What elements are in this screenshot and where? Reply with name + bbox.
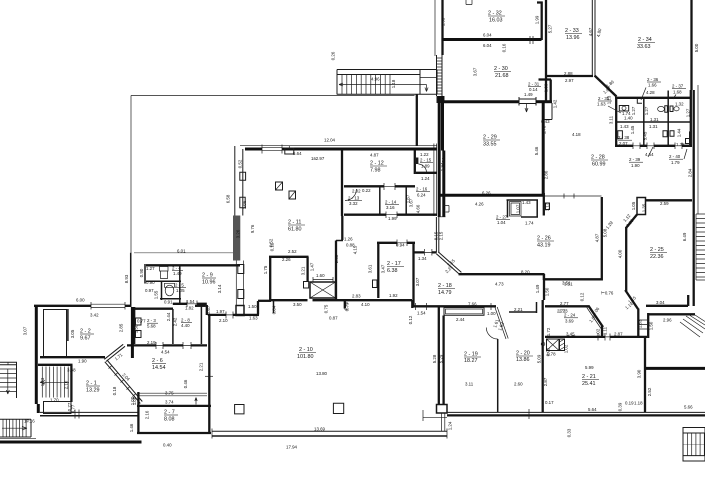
svg-text:1.63: 1.63 <box>638 319 643 328</box>
svg-text:2 - 32: 2 - 32 <box>488 11 502 17</box>
svg-text:2.38: 2.38 <box>334 254 339 263</box>
svg-text:1.47: 1.47 <box>310 262 315 271</box>
svg-text:⊢0.76: ⊢0.76 <box>601 291 614 296</box>
svg-text:2 - 6: 2 - 6 <box>152 358 163 364</box>
svg-text:1.74: 1.74 <box>622 111 631 116</box>
svg-text:101.80: 101.80 <box>297 354 314 360</box>
svg-text:2.44: 2.44 <box>166 312 171 321</box>
svg-text:1.50: 1.50 <box>545 287 550 296</box>
svg-text:2.02: 2.02 <box>352 189 361 194</box>
svg-text:10.96: 10.96 <box>202 280 216 286</box>
svg-text:9.76: 9.76 <box>250 224 255 233</box>
svg-text:1.34: 1.34 <box>440 162 445 171</box>
svg-text:1.06: 1.06 <box>544 83 549 92</box>
svg-text:1.74: 1.74 <box>525 221 534 226</box>
svg-text:0.12: 0.12 <box>408 315 413 324</box>
svg-text:0.79: 0.79 <box>345 302 350 311</box>
svg-text:5.99: 5.99 <box>585 365 594 370</box>
svg-text:13.86: 13.86 <box>516 357 530 363</box>
svg-text:3.90: 3.90 <box>637 369 642 378</box>
svg-text:1.49: 1.49 <box>173 271 182 276</box>
svg-text:0.90: 0.90 <box>139 268 144 277</box>
svg-text:1.00: 1.00 <box>132 396 137 405</box>
svg-text:21.68: 21.68 <box>495 73 509 79</box>
svg-text:1.31: 1.31 <box>649 124 658 129</box>
svg-text:0.12: 0.12 <box>580 292 585 301</box>
svg-text:5.09: 5.09 <box>537 354 542 363</box>
svg-text:2.21: 2.21 <box>514 307 523 312</box>
svg-text:2 - 27: 2 - 27 <box>496 215 508 220</box>
svg-text:2 - 38: 2 - 38 <box>618 135 630 140</box>
svg-text:1.24: 1.24 <box>448 421 453 430</box>
svg-text:2.96: 2.96 <box>663 318 672 323</box>
svg-text:2.42: 2.42 <box>173 317 178 326</box>
svg-text:17.94: 17.94 <box>286 445 298 450</box>
svg-text:6.01: 6.01 <box>177 249 186 254</box>
svg-text:1.18: 1.18 <box>391 79 396 88</box>
svg-text:2 - 18: 2 - 18 <box>438 283 452 289</box>
svg-text:33.63: 33.63 <box>637 44 651 50</box>
svg-text:1.42: 1.42 <box>553 99 558 108</box>
svg-text:5.27: 5.27 <box>548 24 553 33</box>
svg-text:3.67: 3.67 <box>473 67 478 76</box>
svg-text:2.88: 2.88 <box>564 71 573 76</box>
svg-text:5.64: 5.64 <box>293 151 302 156</box>
svg-text:1.32: 1.32 <box>675 102 684 107</box>
svg-text:6.04: 6.04 <box>483 33 492 38</box>
svg-text:25.41: 25.41 <box>582 381 596 387</box>
svg-text:3.69: 3.69 <box>565 319 574 324</box>
svg-text:2 - 37: 2 - 37 <box>672 84 684 89</box>
svg-text:0.33: 0.33 <box>567 428 572 437</box>
svg-text:0.18: 0.18 <box>112 386 117 395</box>
svg-text:60.99: 60.99 <box>592 162 606 168</box>
svg-text:1.00: 1.00 <box>487 311 496 316</box>
svg-text:0.39: 0.39 <box>618 402 623 411</box>
svg-text:4.73: 4.73 <box>495 282 504 287</box>
svg-text:5.29: 5.29 <box>438 354 443 363</box>
svg-text:2 - 13: 2 - 13 <box>348 196 360 201</box>
svg-text:13.96: 13.96 <box>566 35 580 41</box>
svg-text:13.80: 13.80 <box>316 371 328 376</box>
svg-text:43.19: 43.19 <box>537 243 551 249</box>
svg-text:5.00: 5.00 <box>694 43 699 52</box>
svg-text:0.77: 0.77 <box>67 402 72 411</box>
svg-text:7.66: 7.66 <box>468 301 477 306</box>
svg-text:8.15: 8.15 <box>434 231 439 240</box>
svg-text:3.45: 3.45 <box>567 334 576 339</box>
svg-text:1.90: 1.90 <box>78 359 87 364</box>
svg-text:5.66: 5.66 <box>684 405 693 410</box>
svg-text:1.54: 1.54 <box>186 299 195 304</box>
svg-text:3.47: 3.47 <box>381 264 386 273</box>
svg-text:3.67: 3.67 <box>409 198 414 207</box>
svg-text:0.77: 0.77 <box>137 319 146 324</box>
svg-text:3.21: 3.21 <box>301 266 306 275</box>
svg-text:2 - 26: 2 - 26 <box>537 236 551 242</box>
svg-text:8.20: 8.20 <box>521 270 530 275</box>
svg-text:1.31: 1.31 <box>650 117 659 122</box>
svg-text:3.50: 3.50 <box>293 302 302 307</box>
svg-text:0.52: 0.52 <box>238 159 243 168</box>
svg-text:4.26: 4.26 <box>475 202 484 207</box>
svg-text:6.58: 6.58 <box>225 194 230 203</box>
svg-text:22.36: 22.36 <box>650 254 664 260</box>
svg-text:3.05: 3.05 <box>70 329 75 338</box>
svg-text:2.07: 2.07 <box>619 141 628 146</box>
svg-text:2.86: 2.86 <box>544 170 549 179</box>
svg-text:1.06: 1.06 <box>242 200 247 209</box>
svg-text:4.28: 4.28 <box>646 90 655 95</box>
svg-text:6.26: 6.26 <box>482 191 491 196</box>
svg-text:1.68: 1.68 <box>673 90 682 95</box>
svg-text:1.72: 1.72 <box>546 327 551 336</box>
svg-text:2 - 20: 2 - 20 <box>516 351 530 357</box>
svg-text:1.13: 1.13 <box>607 95 612 104</box>
svg-text:1.95: 1.95 <box>441 17 446 26</box>
svg-text:16.03: 16.03 <box>489 18 503 24</box>
svg-text:1.27: 1.27 <box>686 108 691 117</box>
svg-text:8.93: 8.93 <box>124 274 129 283</box>
svg-text:2.59: 2.59 <box>660 201 669 206</box>
svg-text:4.96: 4.96 <box>371 77 380 82</box>
svg-text:4.66: 4.66 <box>416 204 421 213</box>
svg-text:2 - 33: 2 - 33 <box>565 28 579 34</box>
svg-text:5.28: 5.28 <box>432 354 437 363</box>
svg-text:1.35: 1.35 <box>642 203 647 212</box>
svg-text:2 - 1: 2 - 1 <box>86 381 97 387</box>
svg-text:4.40: 4.40 <box>181 323 190 328</box>
svg-text:2.85: 2.85 <box>119 323 124 332</box>
svg-text:0.46: 0.46 <box>183 379 188 388</box>
svg-text:12.04: 12.04 <box>324 138 336 143</box>
svg-text:2 - 28: 2 - 28 <box>591 155 605 161</box>
svg-text:1.03: 1.03 <box>40 377 45 386</box>
svg-text:2 - 3: 2 - 3 <box>147 318 156 323</box>
svg-text:6.04: 6.04 <box>483 43 492 48</box>
svg-text:1Р.16: 1Р.16 <box>24 419 35 424</box>
svg-text:2 - 29: 2 - 29 <box>483 135 497 141</box>
svg-text:1.54: 1.54 <box>417 311 426 316</box>
svg-text:2 - 8: 2 - 8 <box>181 318 190 323</box>
svg-text:2.26: 2.26 <box>282 257 291 262</box>
svg-text:2.52: 2.52 <box>647 387 652 396</box>
svg-text:1.49: 1.49 <box>535 284 540 293</box>
svg-text:4.15: 4.15 <box>353 245 358 254</box>
svg-text:5.45: 5.45 <box>643 131 648 140</box>
svg-text:4.87: 4.87 <box>595 233 600 242</box>
svg-text:1.05: 1.05 <box>631 201 636 210</box>
svg-text:6.38: 6.38 <box>387 268 398 274</box>
svg-text:3.07: 3.07 <box>22 326 27 335</box>
svg-text:4.67: 4.67 <box>588 27 593 36</box>
svg-text:9.67: 9.67 <box>80 336 91 342</box>
svg-text:13.29: 13.29 <box>86 388 100 394</box>
svg-text:0.90: 0.90 <box>146 280 155 285</box>
svg-text:8.08: 8.08 <box>164 417 175 423</box>
svg-text:1.18: 1.18 <box>634 401 643 406</box>
svg-text:3.74: 3.74 <box>165 400 174 405</box>
svg-text:2.87: 2.87 <box>614 331 623 336</box>
svg-text:1.75: 1.75 <box>263 265 268 274</box>
svg-text:6.49: 6.49 <box>682 232 687 241</box>
svg-text:1.24: 1.24 <box>421 176 430 181</box>
svg-text:1.26: 1.26 <box>344 237 353 242</box>
svg-text:2.60: 2.60 <box>514 382 523 387</box>
svg-text:1.40: 1.40 <box>624 116 633 121</box>
svg-text:2 - 10: 2 - 10 <box>299 347 313 353</box>
svg-text:4.18: 4.18 <box>572 132 581 137</box>
svg-text:5.68: 5.68 <box>147 324 156 329</box>
svg-text:2.52: 2.52 <box>288 249 297 254</box>
svg-text:3.51: 3.51 <box>562 281 571 286</box>
svg-text:0.94: 0.94 <box>396 243 405 248</box>
svg-text:1.34: 1.34 <box>418 256 427 261</box>
svg-text:1.50: 1.50 <box>649 321 654 330</box>
svg-text:3.11: 3.11 <box>465 382 474 387</box>
svg-text:2.87: 2.87 <box>543 377 548 386</box>
svg-text:2 - 15: 2 - 15 <box>420 158 432 163</box>
svg-text:2 - 11: 2 - 11 <box>288 220 301 226</box>
svg-text:2.16: 2.16 <box>145 410 150 419</box>
svg-text:3.14: 3.14 <box>217 284 222 293</box>
svg-text:14.54: 14.54 <box>152 365 166 371</box>
svg-text:1.49: 1.49 <box>524 92 533 97</box>
svg-text:1.43: 1.43 <box>522 200 531 205</box>
svg-text:4.00: 4.00 <box>618 249 623 258</box>
svg-text:1.50: 1.50 <box>248 304 257 309</box>
svg-text:2.10: 2.10 <box>64 380 69 389</box>
svg-text:2 - 25: 2 - 25 <box>650 247 664 253</box>
svg-text:0.14: 0.14 <box>529 87 538 92</box>
svg-text:61.80: 61.80 <box>288 227 302 233</box>
svg-text:0.19: 0.19 <box>625 401 634 406</box>
svg-text:1.60: 1.60 <box>316 273 325 278</box>
svg-text:0.26: 0.26 <box>331 51 336 60</box>
svg-text:2 - 30: 2 - 30 <box>494 66 508 72</box>
svg-text:0.22: 0.22 <box>362 188 371 193</box>
svg-text:0.52: 0.52 <box>269 238 274 247</box>
svg-text:2 - 31: 2 - 31 <box>528 82 540 87</box>
svg-text:1.38: 1.38 <box>676 142 685 147</box>
svg-text:1.66: 1.66 <box>648 83 657 88</box>
svg-text:0.67: 0.67 <box>206 305 211 314</box>
svg-text:1.55: 1.55 <box>154 290 159 299</box>
svg-text:6.00: 6.00 <box>76 298 85 303</box>
svg-text:1.05: 1.05 <box>176 288 185 293</box>
svg-text:2 - 12: 2 - 12 <box>370 161 384 167</box>
svg-text:2 - 9: 2 - 9 <box>202 273 213 279</box>
svg-text:4.10: 4.10 <box>361 302 370 307</box>
svg-text:2 - 21: 2 - 21 <box>582 374 596 380</box>
svg-text:1.44: 1.44 <box>677 128 682 137</box>
svg-text:3.32: 3.32 <box>349 201 358 206</box>
svg-text:2 - 40: 2 - 40 <box>669 154 681 159</box>
svg-text:1в2.97: 1в2.97 <box>311 156 325 161</box>
svg-text:1.99: 1.99 <box>388 216 397 221</box>
svg-text:1.82: 1.82 <box>185 306 194 311</box>
svg-text:3.26: 3.26 <box>236 229 241 238</box>
svg-text:5.46: 5.46 <box>534 146 539 155</box>
svg-text:2 - 39: 2 - 39 <box>629 157 641 162</box>
svg-text:3.04: 3.04 <box>656 300 665 305</box>
svg-text:5.64: 5.64 <box>588 407 597 412</box>
svg-text:7.98: 7.98 <box>370 168 381 174</box>
svg-text:0.40: 0.40 <box>163 443 172 448</box>
svg-text:2 - 7: 2 - 7 <box>164 410 175 416</box>
svg-text:1.27: 1.27 <box>146 266 155 271</box>
svg-text:0.75: 0.75 <box>324 304 329 313</box>
svg-text:1.79: 1.79 <box>671 160 680 165</box>
svg-text:1.92: 1.92 <box>389 293 398 298</box>
svg-text:0.87: 0.87 <box>329 316 338 321</box>
svg-text:1.97: 1.97 <box>216 309 225 314</box>
svg-text:1.99: 1.99 <box>535 15 540 24</box>
svg-text:3.61: 3.61 <box>367 264 372 273</box>
svg-text:1.27: 1.27 <box>631 106 636 115</box>
svg-text:3.88: 3.88 <box>67 368 76 373</box>
svg-text:1.02: 1.02 <box>564 344 569 353</box>
svg-text:14.79: 14.79 <box>438 290 452 296</box>
svg-text:3.07: 3.07 <box>415 277 420 286</box>
svg-text:0.17: 0.17 <box>545 400 554 405</box>
svg-text:2.73: 2.73 <box>559 309 568 314</box>
svg-text:2.84: 2.84 <box>688 168 693 177</box>
svg-text:3.16: 3.16 <box>386 205 395 210</box>
svg-text:2 - 17: 2 - 17 <box>387 261 401 267</box>
svg-text:2.77: 2.77 <box>560 301 569 306</box>
svg-text:2 - 19: 2 - 19 <box>464 352 478 358</box>
svg-text:0.16: 0.16 <box>502 43 507 52</box>
svg-text:3.75: 3.75 <box>165 390 174 395</box>
svg-text:2 - 36: 2 - 36 <box>647 77 659 82</box>
svg-text:2 - 2: 2 - 2 <box>80 329 91 335</box>
svg-text:1.13: 1.13 <box>545 202 550 211</box>
svg-text:1.56: 1.56 <box>134 324 139 333</box>
svg-text:2.21: 2.21 <box>199 362 204 371</box>
svg-text:1.78: 1.78 <box>542 125 547 134</box>
svg-text:0.91: 0.91 <box>164 300 173 305</box>
svg-text:2.83: 2.83 <box>352 294 361 299</box>
svg-text:2.97: 2.97 <box>565 78 574 83</box>
svg-text:1.90: 1.90 <box>631 163 640 168</box>
svg-text:2 - 34: 2 - 34 <box>638 37 652 43</box>
svg-text:18.27: 18.27 <box>464 358 478 364</box>
svg-text:1.63: 1.63 <box>597 102 606 107</box>
svg-text:2.44: 2.44 <box>456 317 465 322</box>
svg-text:1.27: 1.27 <box>644 106 649 115</box>
svg-text:1.46: 1.46 <box>129 423 134 432</box>
svg-text:4.54: 4.54 <box>161 350 170 355</box>
svg-text:13.69: 13.69 <box>314 427 326 432</box>
svg-text:1.43: 1.43 <box>620 124 629 129</box>
svg-text:0.92: 0.92 <box>546 347 551 356</box>
svg-text:4.87: 4.87 <box>370 153 379 158</box>
svg-text:1.04: 1.04 <box>497 220 506 225</box>
svg-text:1.45: 1.45 <box>630 125 635 134</box>
svg-text:3.42: 3.42 <box>90 313 99 318</box>
svg-text:2.10: 2.10 <box>219 318 228 323</box>
svg-text:2 - 14: 2 - 14 <box>385 200 397 205</box>
svg-text:6.24: 6.24 <box>417 193 426 198</box>
svg-text:33.55: 33.55 <box>483 142 497 148</box>
svg-text:1.07: 1.07 <box>516 204 521 213</box>
svg-text:2 - 16: 2 - 16 <box>416 187 428 192</box>
svg-text:1.22: 1.22 <box>420 152 429 157</box>
svg-text:3.11: 3.11 <box>609 115 614 124</box>
svg-text:1.63: 1.63 <box>249 316 258 321</box>
svg-text:1.89: 1.89 <box>421 164 430 169</box>
